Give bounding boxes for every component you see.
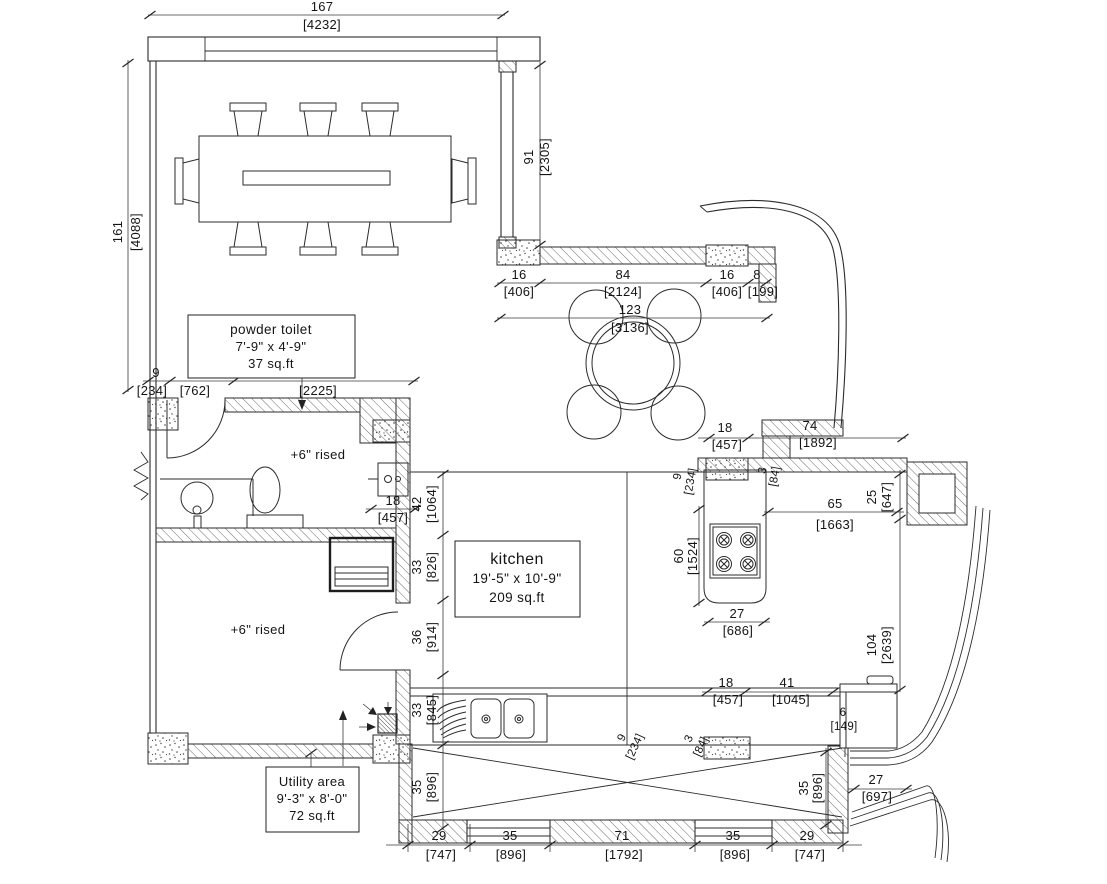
dining-table [175, 103, 476, 255]
dim-k35-value: 35 [409, 779, 424, 794]
room-door [340, 612, 398, 670]
dim-pt-seg1-value: 9 [152, 365, 160, 380]
concrete-column [706, 245, 748, 266]
dim-nook-total-value: 123 [619, 302, 642, 317]
dim-counter65-mm: [1663] [816, 517, 854, 532]
powder-toilet-area: 37 sq.ft [248, 356, 294, 371]
dim-nook-below-mm: [457] [712, 437, 742, 452]
dim-bot71-value: 71 [614, 828, 629, 843]
dim-nook-table-value: 84 [615, 267, 630, 282]
dim-r9-value: 9 [672, 472, 685, 481]
dim-nook-below-value: 18 [717, 420, 732, 435]
kitchen-size: 19'-5" x 10'-9" [472, 571, 561, 586]
dim-bot35b-mm: [896] [720, 847, 750, 862]
dim-island-len-mm: [1524] [685, 537, 700, 575]
dim-nook-total-mm: [3136] [611, 320, 649, 335]
dim-wall104-mm: [2639] [879, 626, 894, 664]
kitchen-area: 209 sq.ft [489, 590, 544, 605]
dim-top-width-value: 167 [311, 0, 334, 14]
dim-wall74-mm: [1892] [799, 435, 837, 450]
dim-wall25-value: 25 [864, 489, 879, 504]
fridge [840, 676, 897, 748]
dim-nook-left-mm: [406] [504, 284, 534, 299]
dim-bot71-mm: [1792] [605, 847, 643, 862]
dim-r3-mm: [84] [767, 465, 782, 487]
raised-floor-note-bottom: +6" rised [231, 622, 286, 637]
kitchen-island-hob [704, 470, 766, 603]
dim-deck35r-value: 35 [796, 780, 811, 795]
dim-left-height-value: 161 [110, 221, 125, 244]
dim-r9-mm: [234] [683, 467, 700, 496]
concrete-column [497, 240, 540, 265]
dim-nook-wall-value: 8 [753, 267, 761, 282]
dim-bot29a-value: 29 [431, 828, 446, 843]
dim-k33b-value: 33 [409, 702, 424, 717]
dim-pt-seg1-mm: [234] [137, 383, 167, 398]
raised-floor-note-top: +6" rised [291, 447, 346, 462]
cabinet-unit [330, 538, 393, 591]
powder-toilet-name: powder toilet [230, 322, 312, 337]
dim-b3-value: 3 [682, 733, 696, 744]
floor-plan-page: 167 [4232] 161 [4088] 91 [2305] 16 [406]… [0, 0, 1107, 884]
dim-left-height-mm: [4088] [128, 213, 143, 251]
duct-shaft [378, 714, 397, 733]
dim-k33b-mm: [845] [424, 695, 439, 725]
dim-deck27-value: 27 [868, 772, 883, 787]
round-chair [651, 386, 705, 440]
round-chair [647, 289, 701, 343]
dim-k36-mm: [914] [424, 622, 439, 652]
utility-name: Utility area [279, 774, 346, 789]
dim-bot29a-mm: [747] [426, 847, 456, 862]
dim-b18-mm: [457] [713, 692, 743, 707]
floor-plan-canvas: 167 [4232] 161 [4088] 91 [2305] 16 [406]… [0, 0, 1107, 884]
dim-pt-fixture-mm: [457] [378, 510, 408, 525]
dim-island-len-value: 60 [671, 548, 686, 563]
concrete-column [148, 733, 188, 764]
dim-bot35a-mm: [896] [496, 847, 526, 862]
concrete-column [706, 458, 748, 480]
toilet [250, 467, 280, 513]
dim-bot35a-value: 35 [502, 828, 517, 843]
dim-pt-seg2-mm: [762] [180, 383, 210, 398]
dim-b9-mm: [234] [624, 732, 646, 762]
dim-nook-table-mm: [2124] [604, 284, 642, 299]
wall-break-symbol [134, 452, 148, 500]
dim-pt-seg3-mm: [2225] [299, 383, 337, 398]
hob-burner [717, 533, 756, 572]
utility-area: 72 sq.ft [289, 808, 335, 823]
dim-nook-right-value: 16 [719, 267, 734, 282]
dim-island-width-value: 27 [729, 606, 744, 621]
dim-deck27-mm: [697] [862, 789, 892, 804]
concrete-column [373, 735, 410, 763]
wash-basin [181, 482, 213, 514]
dim-bot29b-mm: [747] [795, 847, 825, 862]
dim-pt-fixture-value: 18 [385, 493, 400, 508]
dining-chair [175, 103, 476, 255]
dim-corridor-mm: [2305] [537, 138, 552, 176]
dim-bot29b-value: 29 [799, 828, 814, 843]
door-swing-arc [340, 612, 398, 670]
dim-corridor-value: 91 [521, 149, 536, 164]
dim-k33a-value: 33 [409, 559, 424, 574]
dim-wall25-mm: [647] [879, 482, 894, 512]
dim-wall104-value: 104 [864, 634, 879, 657]
dim-k33a-mm: [826] [424, 552, 439, 582]
dim-k36-value: 36 [409, 629, 424, 644]
curved-wall-outer [700, 201, 846, 428]
kitchen-sink [433, 694, 547, 742]
dim-deck35r-mm: [896] [810, 773, 825, 803]
dim-wall74-value: 74 [802, 418, 817, 433]
concrete-column [148, 398, 178, 430]
fridge-handle [867, 676, 893, 684]
kitchen-name: kitchen [490, 551, 544, 568]
dim-top-width-mm: [4232] [303, 17, 341, 32]
dim-nook-wall-mm: [199] [748, 284, 778, 299]
dim-k42-mm: [1064] [424, 485, 439, 523]
round-chair [567, 385, 621, 439]
dim-b6-mm: [149] [830, 721, 857, 733]
dim-island-width-mm: [686] [723, 623, 753, 638]
dim-b41-value: 41 [779, 675, 794, 690]
dim-nook-left-value: 16 [511, 267, 526, 282]
dim-k35-mm: [896] [424, 772, 439, 802]
dim-b41-mm: [1045] [772, 692, 810, 707]
dim-counter65-value: 65 [827, 496, 842, 511]
dim-b6-value: 6 [840, 707, 847, 719]
powder-toilet-size: 7'-9" x 4'-9" [236, 339, 307, 354]
dining-top-wall [148, 37, 540, 61]
dim-b18-value: 18 [718, 675, 733, 690]
dim-nook-right-mm: [406] [712, 284, 742, 299]
dim-k42-value: 42 [409, 496, 424, 511]
utility-size: 9'-3" x 8'-0" [277, 791, 348, 806]
dim-bot35b-value: 35 [725, 828, 740, 843]
